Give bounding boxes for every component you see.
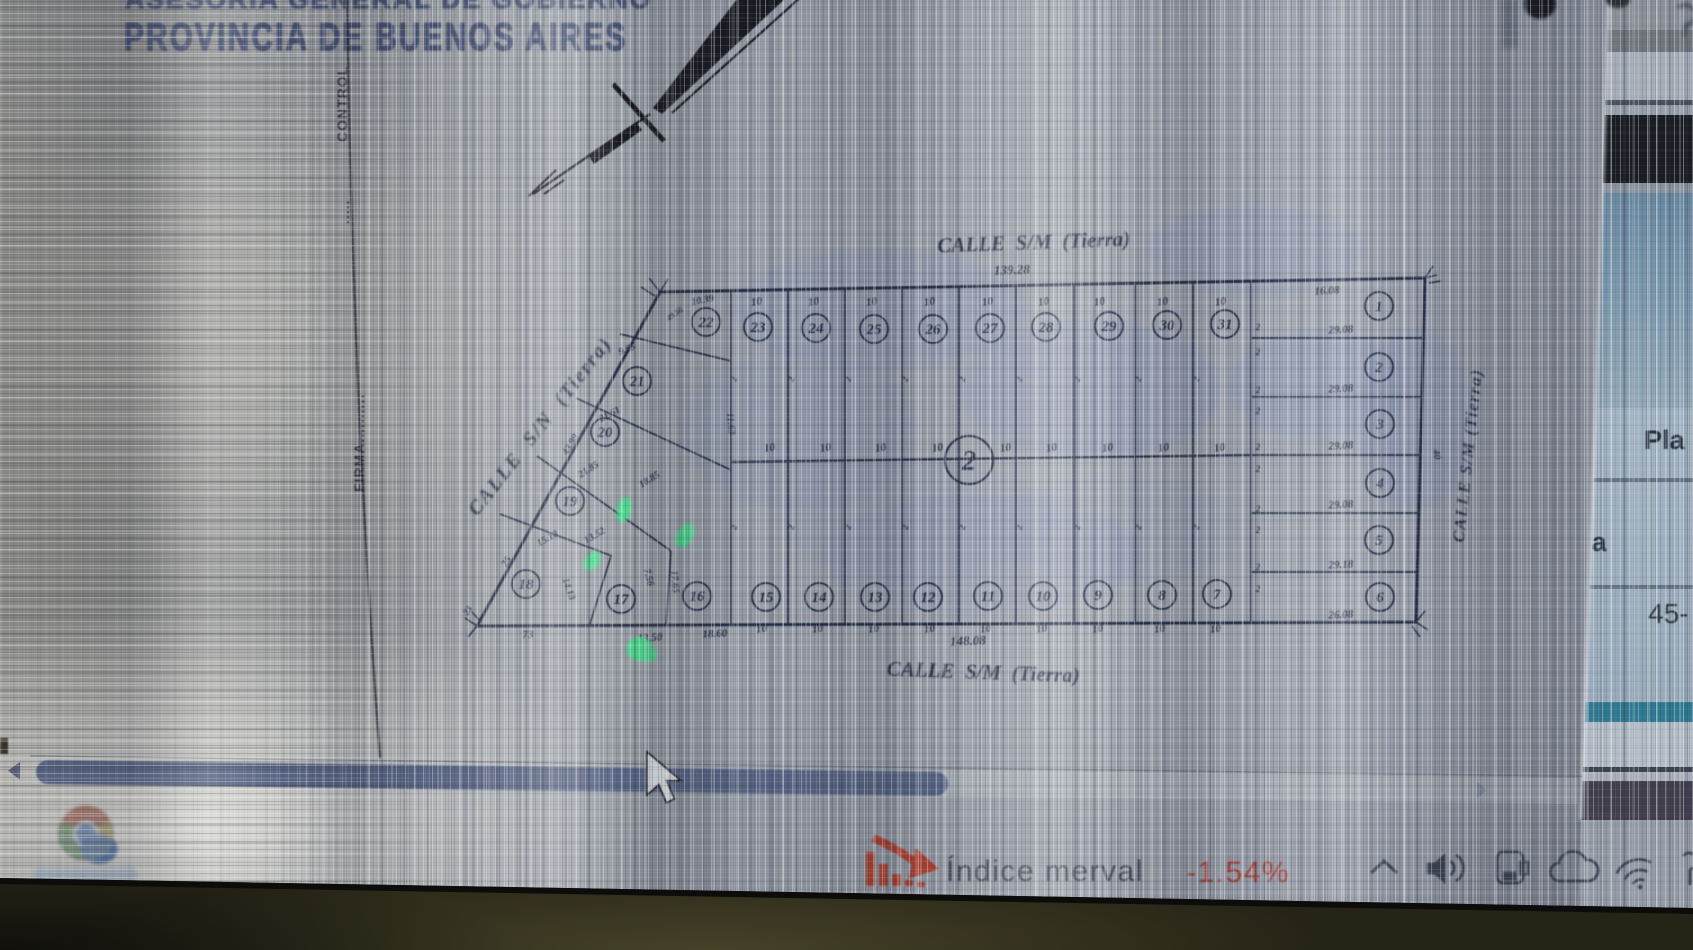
svg-text:2: 2	[1255, 464, 1261, 474]
svg-text:10.39: 10.39	[691, 293, 715, 308]
svg-text:18.60: 18.60	[702, 627, 728, 640]
svg-text:17.65: 17.65	[668, 570, 681, 593]
svg-text:10: 10	[1101, 441, 1114, 454]
svg-text:10: 10	[931, 441, 944, 454]
svg-text:10: 10	[807, 295, 820, 308]
svg-text:10: 10	[1157, 441, 1170, 454]
svg-text:21.61: 21.61	[596, 405, 622, 426]
svg-text:18: 18	[519, 577, 535, 593]
svg-text:10: 10	[1035, 622, 1048, 635]
svg-text:2: 2	[1255, 504, 1261, 514]
svg-text:23: 23	[750, 320, 767, 336]
svg-text:21: 21	[629, 374, 645, 390]
svg-text:22: 22	[698, 315, 715, 331]
svg-text:24: 24	[808, 321, 825, 337]
svg-text:10: 10	[1213, 441, 1226, 454]
svg-text:4: 4	[1375, 476, 1384, 492]
svg-text:13.52: 13.52	[582, 525, 607, 546]
svg-text:10: 10	[923, 622, 936, 635]
svg-text:11.63: 11.63	[724, 412, 737, 435]
svg-text:16.08: 16.08	[1314, 284, 1340, 297]
svg-text:10: 10	[923, 295, 936, 308]
svg-text:23: 23	[460, 604, 474, 618]
svg-text:10: 10	[1153, 622, 1166, 635]
svg-text:2: 2	[1255, 584, 1261, 594]
svg-text:Índice merval: Índice merval	[946, 855, 1144, 888]
svg-text:10: 10	[1036, 589, 1052, 605]
svg-text:49.56: 49.56	[664, 305, 685, 323]
svg-text:13: 13	[868, 590, 884, 606]
svg-text:18.85: 18.85	[637, 469, 662, 490]
svg-text:7.56: 7.56	[641, 567, 656, 587]
svg-text:26: 26	[925, 322, 942, 338]
svg-text:9.65: 9.65	[617, 341, 637, 358]
svg-text:10: 10	[755, 622, 768, 635]
svg-text:29.08: 29.08	[1327, 439, 1354, 452]
svg-text:10: 10	[1214, 295, 1227, 308]
svg-text:7: 7	[1213, 587, 1221, 603]
svg-text:10: 10	[1037, 295, 1050, 308]
svg-text:15: 15	[759, 590, 775, 606]
svg-text:28: 28	[1038, 320, 1055, 336]
svg-text:30: 30	[1159, 318, 1176, 334]
svg-text:25: 25	[866, 322, 883, 338]
svg-text:5: 5	[1375, 533, 1383, 549]
svg-text:10: 10	[819, 441, 832, 454]
svg-text:10: 10	[1045, 441, 1058, 454]
svg-text:21.85: 21.85	[575, 459, 601, 481]
svg-text:29.18: 29.18	[1327, 558, 1354, 571]
svg-text:14.13: 14.13	[559, 577, 577, 602]
svg-text:16: 16	[690, 589, 706, 605]
svg-text:2: 2	[1255, 347, 1261, 357]
svg-text:-1.54%: -1.54%	[1186, 856, 1290, 889]
svg-text:10: 10	[867, 622, 880, 635]
svg-text:10: 10	[763, 441, 776, 454]
svg-text:2: 2	[961, 446, 976, 477]
svg-text:29: 29	[1101, 319, 1118, 335]
svg-text:40: 40	[1430, 448, 1443, 461]
svg-text:10: 10	[1093, 295, 1106, 308]
svg-text:43.99: 43.99	[560, 432, 581, 458]
svg-text:CALLE S/M (Tierra): CALLE S/M (Tierra)	[886, 657, 1080, 688]
svg-text:3: 3	[1375, 417, 1384, 433]
svg-text:73: 73	[522, 629, 534, 642]
svg-text:2: 2	[1255, 385, 1261, 395]
svg-text:148.08: 148.08	[950, 632, 987, 648]
svg-text:14: 14	[812, 590, 828, 606]
svg-text:29.08: 29.08	[1327, 498, 1354, 511]
svg-text:27: 27	[982, 321, 999, 337]
svg-text:2: 2	[728, 523, 739, 531]
svg-text:CALLE S/M (Tierra): CALLE S/M (Tierra)	[937, 227, 1131, 258]
svg-text:139.28: 139.28	[994, 261, 1031, 277]
svg-text:20: 20	[597, 425, 614, 441]
svg-text:10: 10	[1209, 622, 1222, 635]
svg-text:29.08: 29.08	[1327, 382, 1354, 395]
svg-text:10: 10	[750, 295, 763, 308]
svg-text:12: 12	[921, 590, 937, 606]
svg-text:10: 10	[1156, 295, 1169, 308]
svg-text:10: 10	[865, 295, 878, 308]
svg-text:10: 10	[811, 622, 824, 635]
svg-text:9: 9	[1094, 588, 1102, 604]
svg-text:19: 19	[563, 494, 579, 510]
svg-text:2: 2	[899, 375, 910, 383]
svg-text:10: 10	[1091, 622, 1104, 635]
svg-text:26.08: 26.08	[1327, 608, 1354, 621]
svg-text:2: 2	[1374, 360, 1383, 376]
svg-text:15.10: 15.10	[535, 528, 560, 549]
svg-text:CALLE S/N (Tierra): CALLE S/N (Tierra)	[464, 333, 617, 520]
svg-text:17: 17	[614, 592, 630, 608]
svg-text:2: 2	[1255, 322, 1261, 332]
svg-text:10: 10	[874, 441, 887, 454]
svg-text:29.08: 29.08	[1327, 323, 1354, 336]
svg-text:10: 10	[981, 295, 994, 308]
svg-text:2: 2	[1255, 525, 1261, 535]
svg-text:31: 31	[1217, 317, 1233, 333]
svg-text:8: 8	[1158, 588, 1166, 604]
svg-text:6: 6	[1376, 590, 1384, 606]
svg-text:2: 2	[1255, 442, 1261, 452]
svg-text:25: 25	[499, 555, 514, 570]
svg-text:2: 2	[1255, 562, 1261, 572]
svg-text:2: 2	[1255, 406, 1261, 416]
svg-text:10: 10	[999, 441, 1012, 454]
svg-text:11: 11	[981, 589, 995, 605]
svg-text:1: 1	[1375, 299, 1383, 315]
